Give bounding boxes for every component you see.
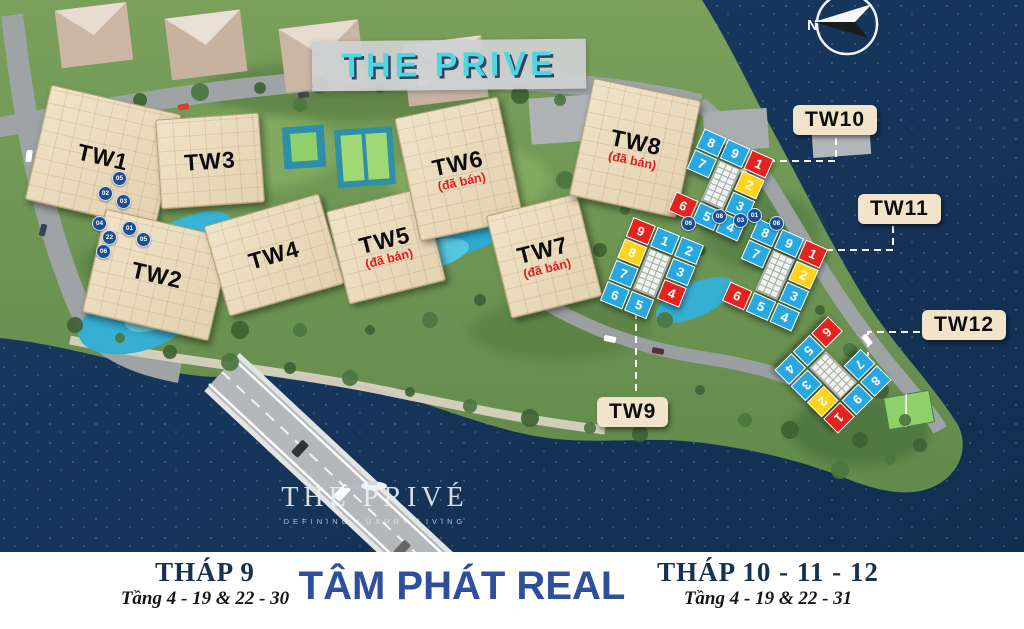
- tower-label: TW2: [129, 256, 185, 294]
- amenity-badge: 06: [96, 244, 111, 259]
- amenity-badge: 02: [98, 186, 113, 201]
- amenity-badge: 04: [92, 216, 107, 231]
- tag-tw12: TW12: [922, 310, 1006, 340]
- watermark-subtitle: DEFINING LUXURY LIVING: [280, 517, 470, 526]
- tower-tw3: TW3: [155, 112, 265, 209]
- thap10-12-title: THÁP 10 - 11 - 12: [628, 558, 908, 586]
- compass-needle-bottom: [814, 22, 868, 38]
- tower-label: TW1: [75, 138, 131, 176]
- amenity-badge: 03: [116, 194, 131, 209]
- brand-watermark: THE PRIVÉ DEFINING LUXURY LIVING: [280, 482, 470, 526]
- amenity-badge: 01: [122, 221, 137, 236]
- amenity-badge: 06: [681, 216, 696, 231]
- tower-label: TW3: [183, 146, 236, 177]
- project-banner: THE PRIVE: [312, 39, 587, 92]
- amenity-badge: 05: [112, 171, 127, 186]
- compass: N: [800, 0, 900, 68]
- amenity-badge: 01: [747, 208, 762, 223]
- tag-tw9: TW9: [597, 397, 668, 427]
- footer-right-block: THÁP 10 - 11 - 12 Tầng 4 - 19 & 22 - 31: [628, 558, 908, 610]
- project-title: THE PRIVE: [341, 44, 557, 85]
- amenity-badge: 05: [136, 232, 151, 247]
- masterplan-map: TW1 TW2 TW3 TW4 TW5 (đã bán) TW6 (đã bán…: [0, 0, 1024, 552]
- tag-tw10: TW10: [793, 105, 877, 135]
- tag-tw11: TW11: [858, 194, 941, 224]
- watermark-title: THE PRIVÉ: [280, 482, 470, 514]
- agency-brand: TÂM PHÁT REAL: [282, 564, 642, 609]
- site-plan-poster: TW1 TW2 TW3 TW4 TW5 (đã bán) TW6 (đã bán…: [0, 0, 1024, 629]
- amenity-badge: 03: [733, 213, 748, 228]
- amenity-badge: 08: [712, 209, 727, 224]
- amenity-badge: 08: [769, 216, 784, 231]
- amenity-badge: 22: [102, 230, 117, 245]
- tower-label: TW4: [245, 235, 302, 275]
- footer-band: THÁP 9 Tầng 4 - 19 & 22 - 30 TÂM PHÁT RE…: [0, 552, 1024, 629]
- thap10-12-floors: Tầng 4 - 19 & 22 - 31: [628, 588, 908, 610]
- compass-north-label: N: [807, 17, 818, 34]
